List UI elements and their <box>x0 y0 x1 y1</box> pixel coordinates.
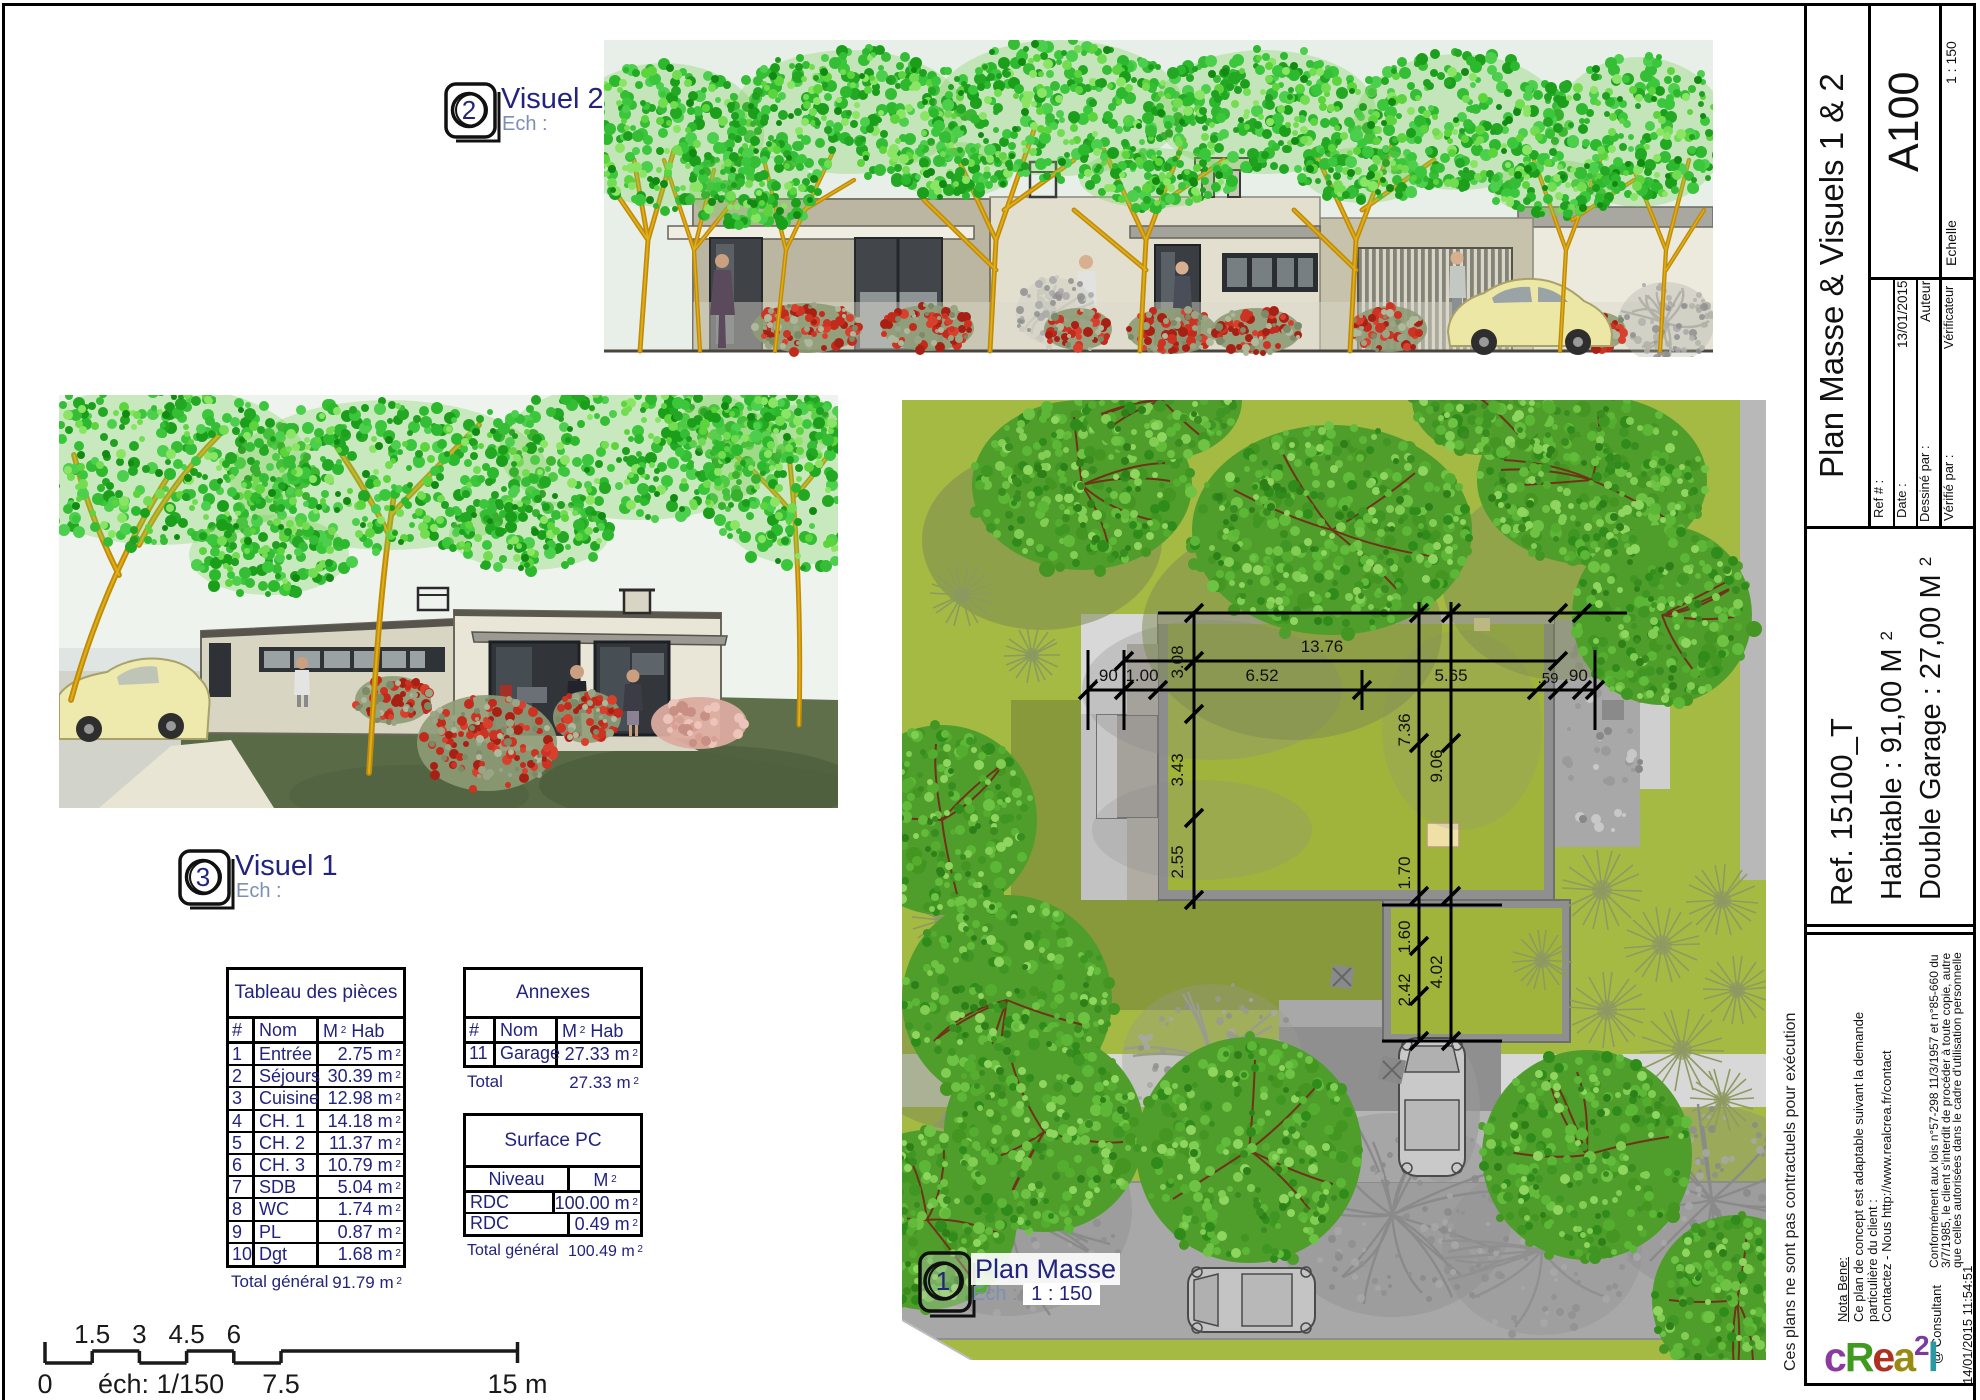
svg-text:3: 3 <box>196 862 210 892</box>
svg-text:2: 2 <box>462 95 476 125</box>
